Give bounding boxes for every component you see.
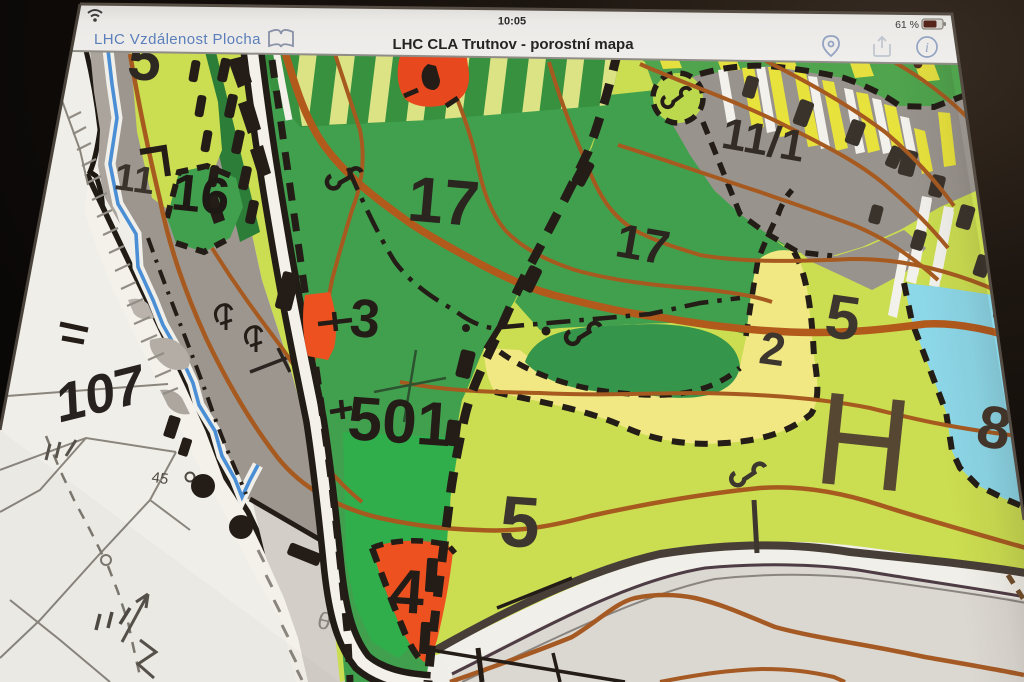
svg-text:501: 501 <box>345 384 453 460</box>
svg-text:16: 16 <box>169 163 233 227</box>
svg-text:LHC CLA Trutnov - porostní map: LHC CLA Trutnov - porostní mapa <box>392 36 634 53</box>
svg-text:10:05: 10:05 <box>498 16 526 28</box>
svg-text:11: 11 <box>112 156 158 203</box>
svg-text:45: 45 <box>151 469 170 488</box>
svg-text:17: 17 <box>612 214 674 275</box>
svg-text:61 %: 61 % <box>895 19 919 31</box>
svg-text:4: 4 <box>387 557 427 628</box>
svg-text:H: H <box>808 364 918 520</box>
svg-text:3: 3 <box>348 288 382 350</box>
svg-text:LHC Vzdálenost Plocha: LHC Vzdálenost Plocha <box>94 31 261 48</box>
svg-text:i: i <box>925 41 929 56</box>
svg-text:17: 17 <box>405 162 482 240</box>
svg-text:5: 5 <box>497 481 543 564</box>
